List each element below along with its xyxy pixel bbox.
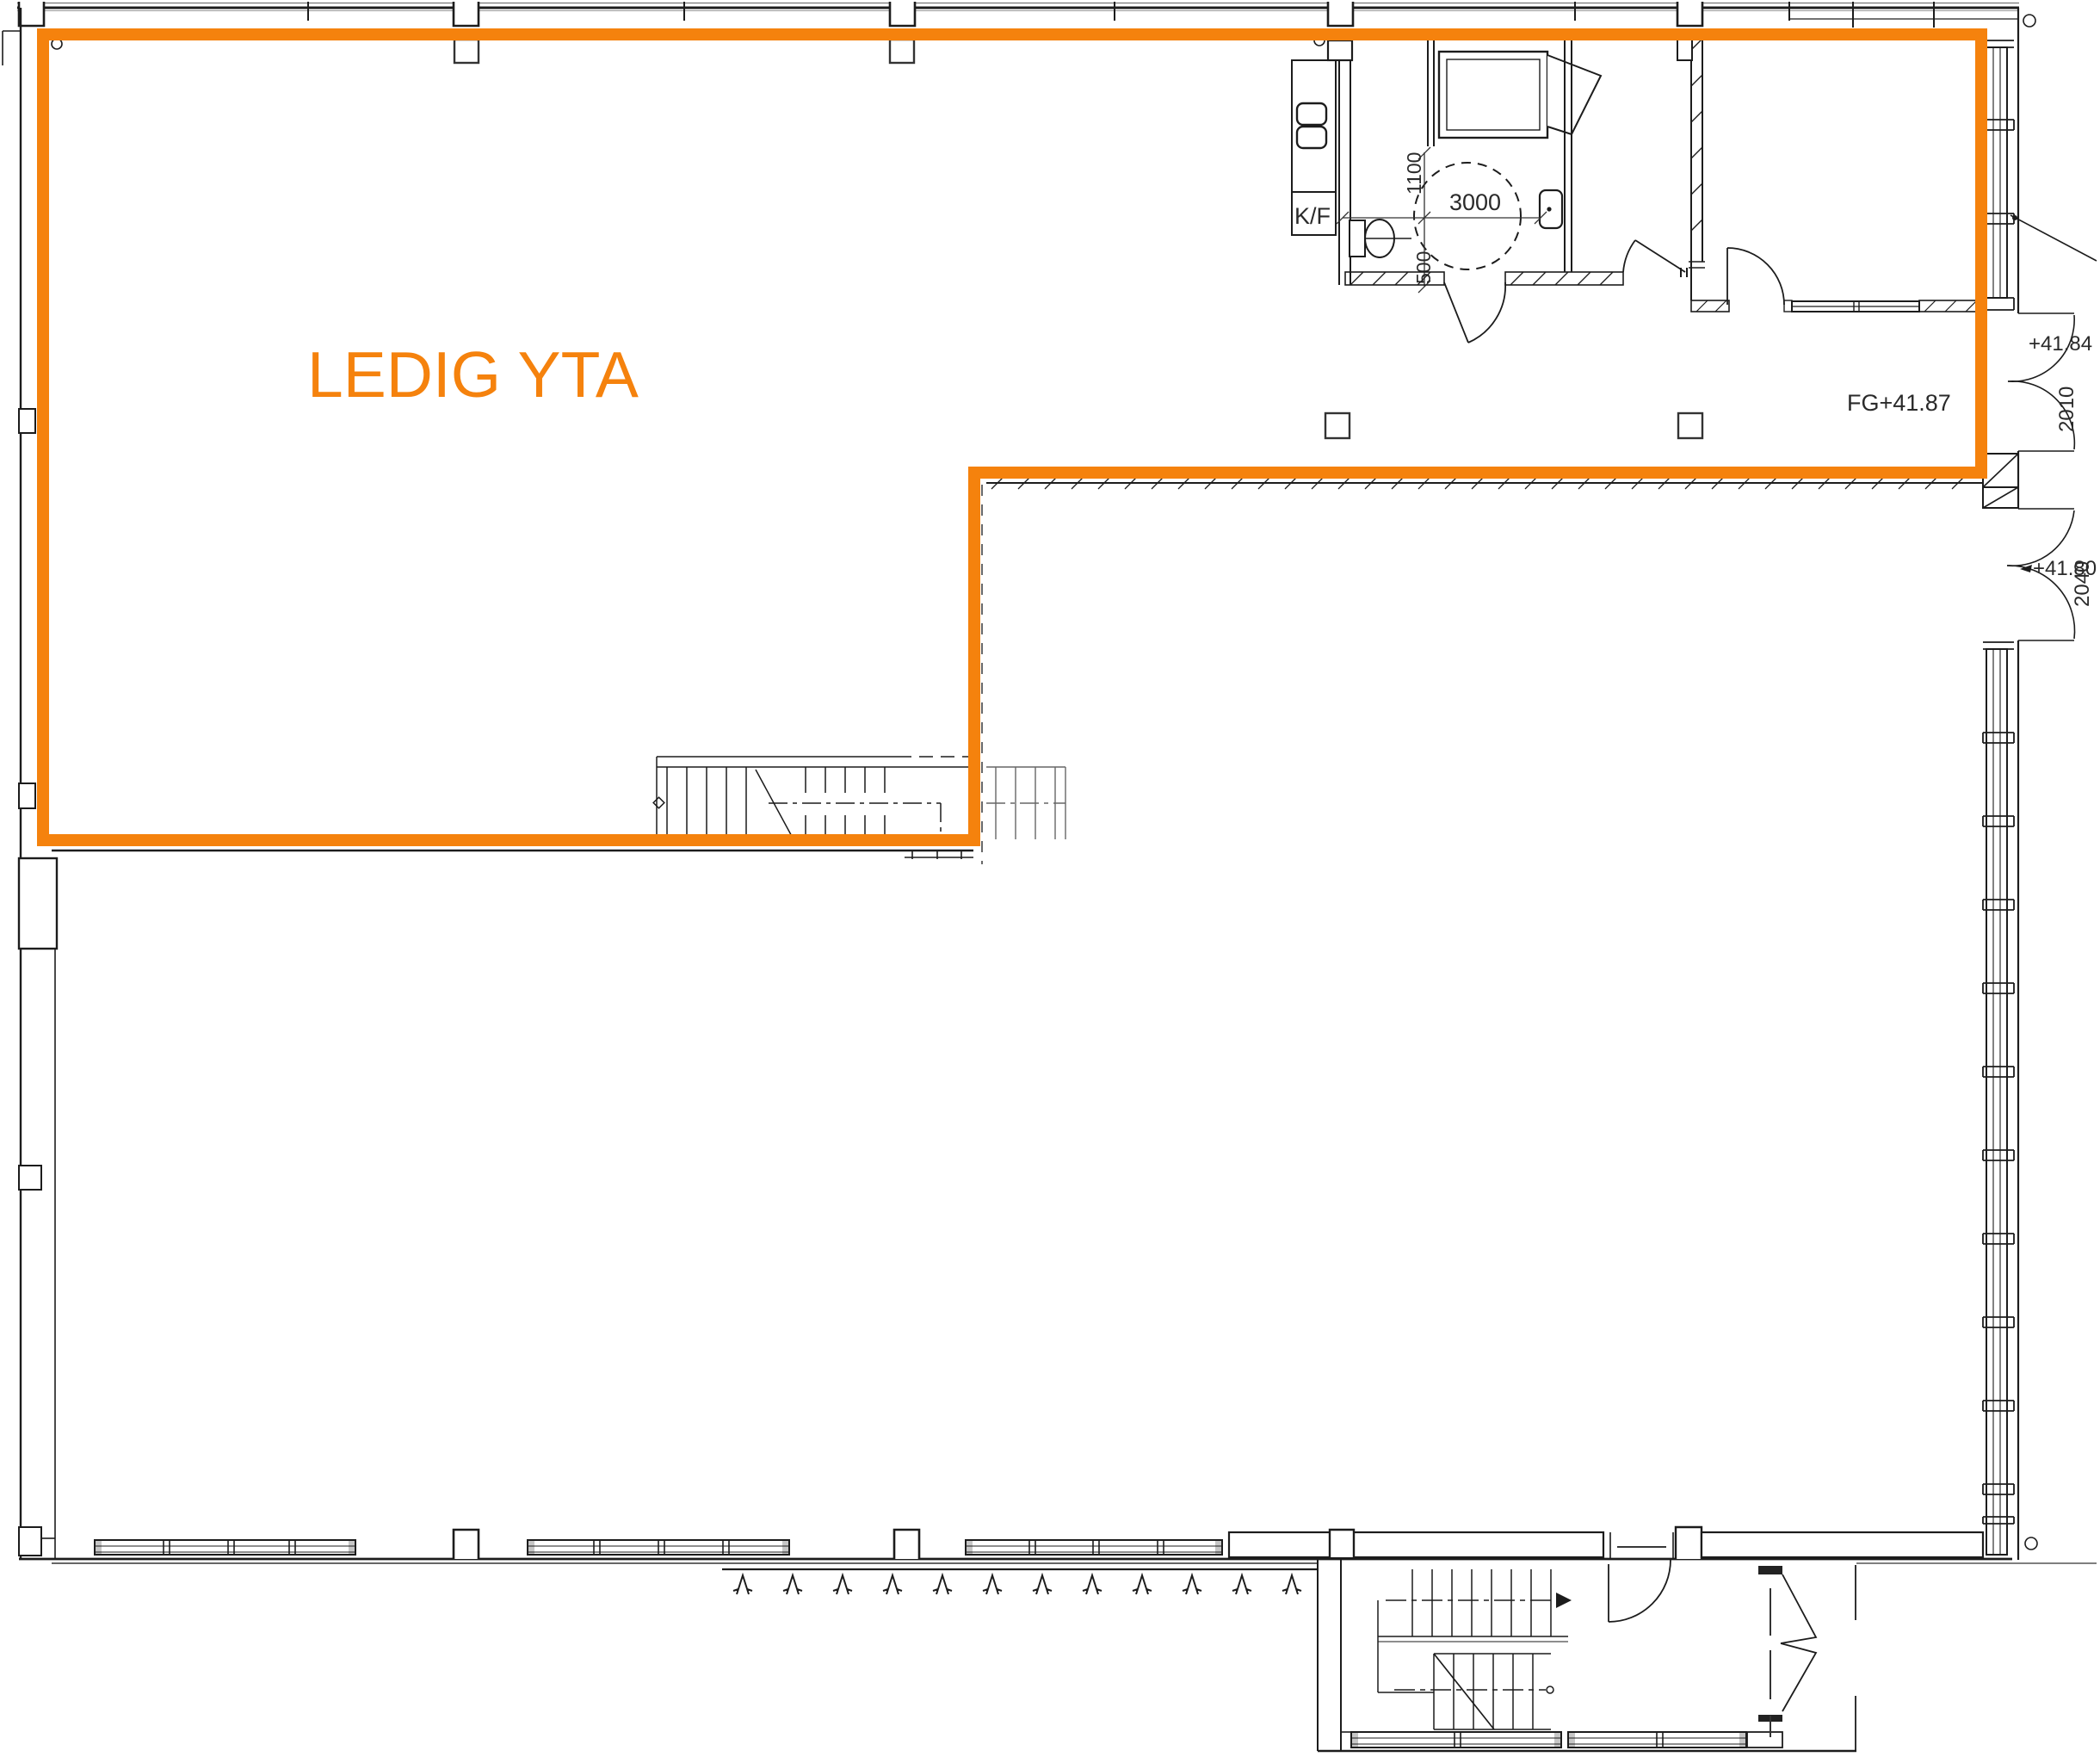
svg-text:1100: 1100 bbox=[1403, 152, 1425, 195]
svg-text:3000: 3000 bbox=[1449, 189, 1501, 215]
svg-text:K/F: K/F bbox=[1294, 203, 1331, 229]
svg-text:2010: 2010 bbox=[2055, 387, 2078, 432]
svg-text:LEDIG YTA: LEDIG YTA bbox=[307, 338, 639, 411]
svg-text:FG+41.87: FG+41.87 bbox=[1847, 390, 1951, 416]
svg-text:+41.84: +41.84 bbox=[2029, 332, 2092, 356]
svg-text:2040: 2040 bbox=[2071, 561, 2094, 607]
